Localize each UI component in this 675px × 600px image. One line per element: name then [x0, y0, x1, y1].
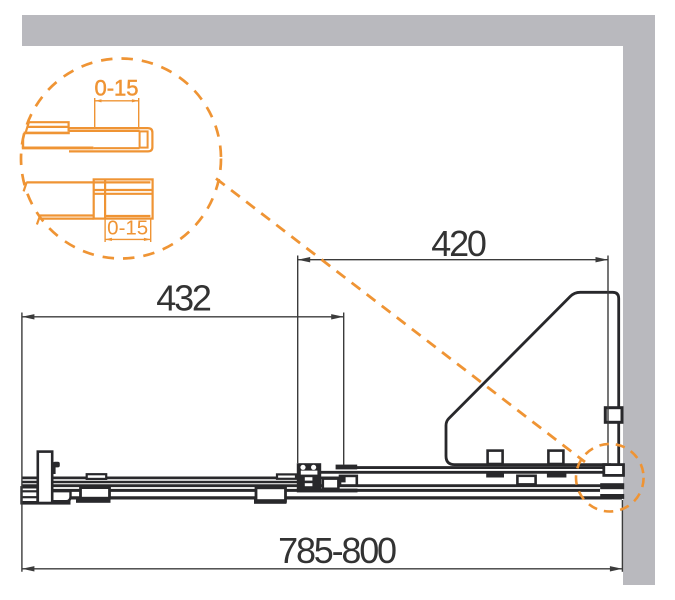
svg-text:785-800: 785-800: [278, 530, 396, 571]
svg-text:0-15: 0-15: [107, 217, 148, 240]
svg-text:0-15: 0-15: [94, 76, 138, 101]
svg-text:432: 432: [156, 278, 211, 319]
svg-text:420: 420: [431, 223, 486, 264]
